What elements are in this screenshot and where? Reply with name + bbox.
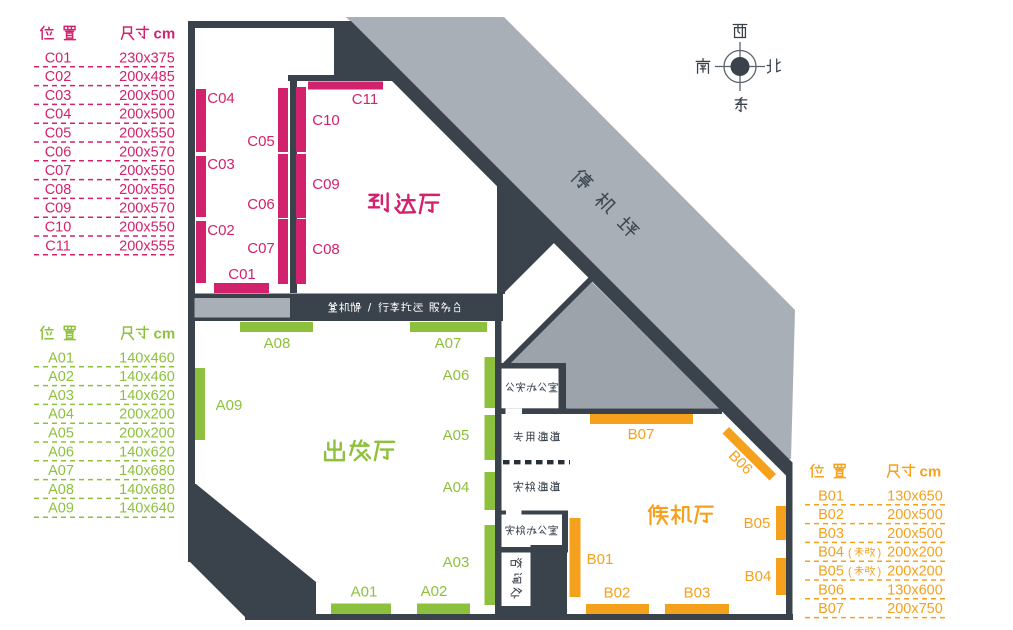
- svg-text:C06: C06: [45, 144, 72, 160]
- svg-text:200x570: 200x570: [119, 144, 175, 160]
- svg-text:200x500: 200x500: [119, 88, 175, 104]
- svg-text:C08: C08: [312, 241, 340, 258]
- svg-text:200x200: 200x200: [119, 407, 175, 423]
- svg-text:A05: A05: [48, 426, 74, 442]
- svg-text:C03: C03: [45, 88, 72, 104]
- svg-text:C10: C10: [45, 220, 72, 236]
- svg-text:A08: A08: [48, 482, 74, 498]
- svg-text:C05: C05: [247, 133, 275, 150]
- svg-text:140x460: 140x460: [119, 350, 175, 366]
- svg-text:130x600: 130x600: [887, 582, 943, 598]
- svg-text:B03: B03: [818, 526, 844, 542]
- svg-text:200x200: 200x200: [887, 545, 943, 561]
- svg-text:140x680: 140x680: [119, 463, 175, 479]
- svg-text:B07: B07: [818, 601, 844, 617]
- svg-text:cm: cm: [920, 464, 942, 481]
- svg-text:200x200: 200x200: [119, 426, 175, 442]
- svg-text:200x500: 200x500: [119, 107, 175, 123]
- svg-text:A01: A01: [48, 350, 74, 366]
- svg-text:cm: cm: [154, 26, 176, 43]
- svg-text:C01: C01: [45, 50, 72, 66]
- svg-text:(: (: [848, 566, 852, 578]
- svg-text:A05: A05: [443, 427, 470, 444]
- svg-text:A07: A07: [435, 335, 462, 352]
- svg-text:A03: A03: [48, 388, 74, 404]
- svg-text:200x750: 200x750: [887, 601, 943, 617]
- svg-text:B07: B07: [628, 426, 655, 443]
- svg-text:230x375: 230x375: [119, 50, 175, 66]
- svg-text:C02: C02: [45, 69, 72, 85]
- svg-text:140x640: 140x640: [119, 501, 175, 517]
- svg-text:A03: A03: [443, 554, 470, 571]
- svg-text:B05: B05: [818, 564, 844, 580]
- svg-text:A08: A08: [264, 335, 291, 352]
- svg-text:A02: A02: [421, 583, 448, 600]
- svg-text:C09: C09: [312, 176, 340, 193]
- svg-text:B01: B01: [587, 551, 614, 568]
- svg-text:cm: cm: [154, 326, 176, 343]
- svg-text:B02: B02: [604, 585, 631, 602]
- svg-text:): ): [878, 566, 882, 578]
- svg-text:200x500: 200x500: [887, 507, 943, 523]
- svg-text:C08: C08: [45, 182, 72, 198]
- svg-text:C10: C10: [312, 112, 340, 129]
- svg-text:200x550: 200x550: [119, 163, 175, 179]
- svg-text:A04: A04: [48, 407, 74, 423]
- svg-text:200x570: 200x570: [119, 201, 175, 217]
- svg-text:B02: B02: [818, 507, 844, 523]
- svg-text:C04: C04: [207, 90, 235, 107]
- svg-text:A06: A06: [443, 367, 470, 384]
- svg-text:200x485: 200x485: [119, 69, 175, 85]
- svg-text:C06: C06: [247, 196, 275, 213]
- svg-text:140x680: 140x680: [119, 482, 175, 498]
- svg-text:A07: A07: [48, 463, 74, 479]
- svg-text:200x550: 200x550: [119, 126, 175, 142]
- svg-text:A06: A06: [48, 444, 74, 460]
- svg-text:200x500: 200x500: [887, 526, 943, 542]
- svg-text:200x555: 200x555: [119, 238, 175, 254]
- svg-text:200x550: 200x550: [119, 182, 175, 198]
- svg-text:B04: B04: [818, 545, 844, 561]
- svg-text:C04: C04: [45, 107, 72, 123]
- svg-text:A09: A09: [48, 501, 74, 517]
- svg-text:C07: C07: [247, 240, 275, 257]
- svg-text:130x650: 130x650: [887, 488, 943, 504]
- svg-text:C07: C07: [45, 163, 72, 179]
- svg-text:B01: B01: [818, 488, 844, 504]
- svg-text:140x460: 140x460: [119, 369, 175, 385]
- svg-text:B06: B06: [818, 582, 844, 598]
- svg-text:C05: C05: [45, 126, 72, 142]
- svg-text:A01: A01: [351, 584, 378, 601]
- svg-text:C11: C11: [45, 238, 71, 254]
- svg-text:140x620: 140x620: [119, 444, 175, 460]
- svg-text:B03: B03: [684, 585, 711, 602]
- svg-text:B05: B05: [744, 515, 771, 532]
- svg-text:C03: C03: [207, 156, 235, 173]
- svg-text:A02: A02: [48, 369, 74, 385]
- svg-text:C01: C01: [228, 266, 256, 283]
- svg-text:(: (: [848, 547, 852, 559]
- svg-text:C11: C11: [352, 91, 378, 108]
- svg-text:140x620: 140x620: [119, 388, 175, 404]
- svg-text:200x550: 200x550: [119, 220, 175, 236]
- svg-text:): ): [878, 547, 882, 559]
- svg-text:C09: C09: [45, 201, 72, 217]
- svg-text:C02: C02: [207, 222, 235, 239]
- svg-text:B04: B04: [745, 568, 772, 585]
- svg-text:200x200: 200x200: [887, 564, 943, 580]
- svg-text:A04: A04: [443, 479, 470, 496]
- svg-text:A09: A09: [216, 397, 243, 414]
